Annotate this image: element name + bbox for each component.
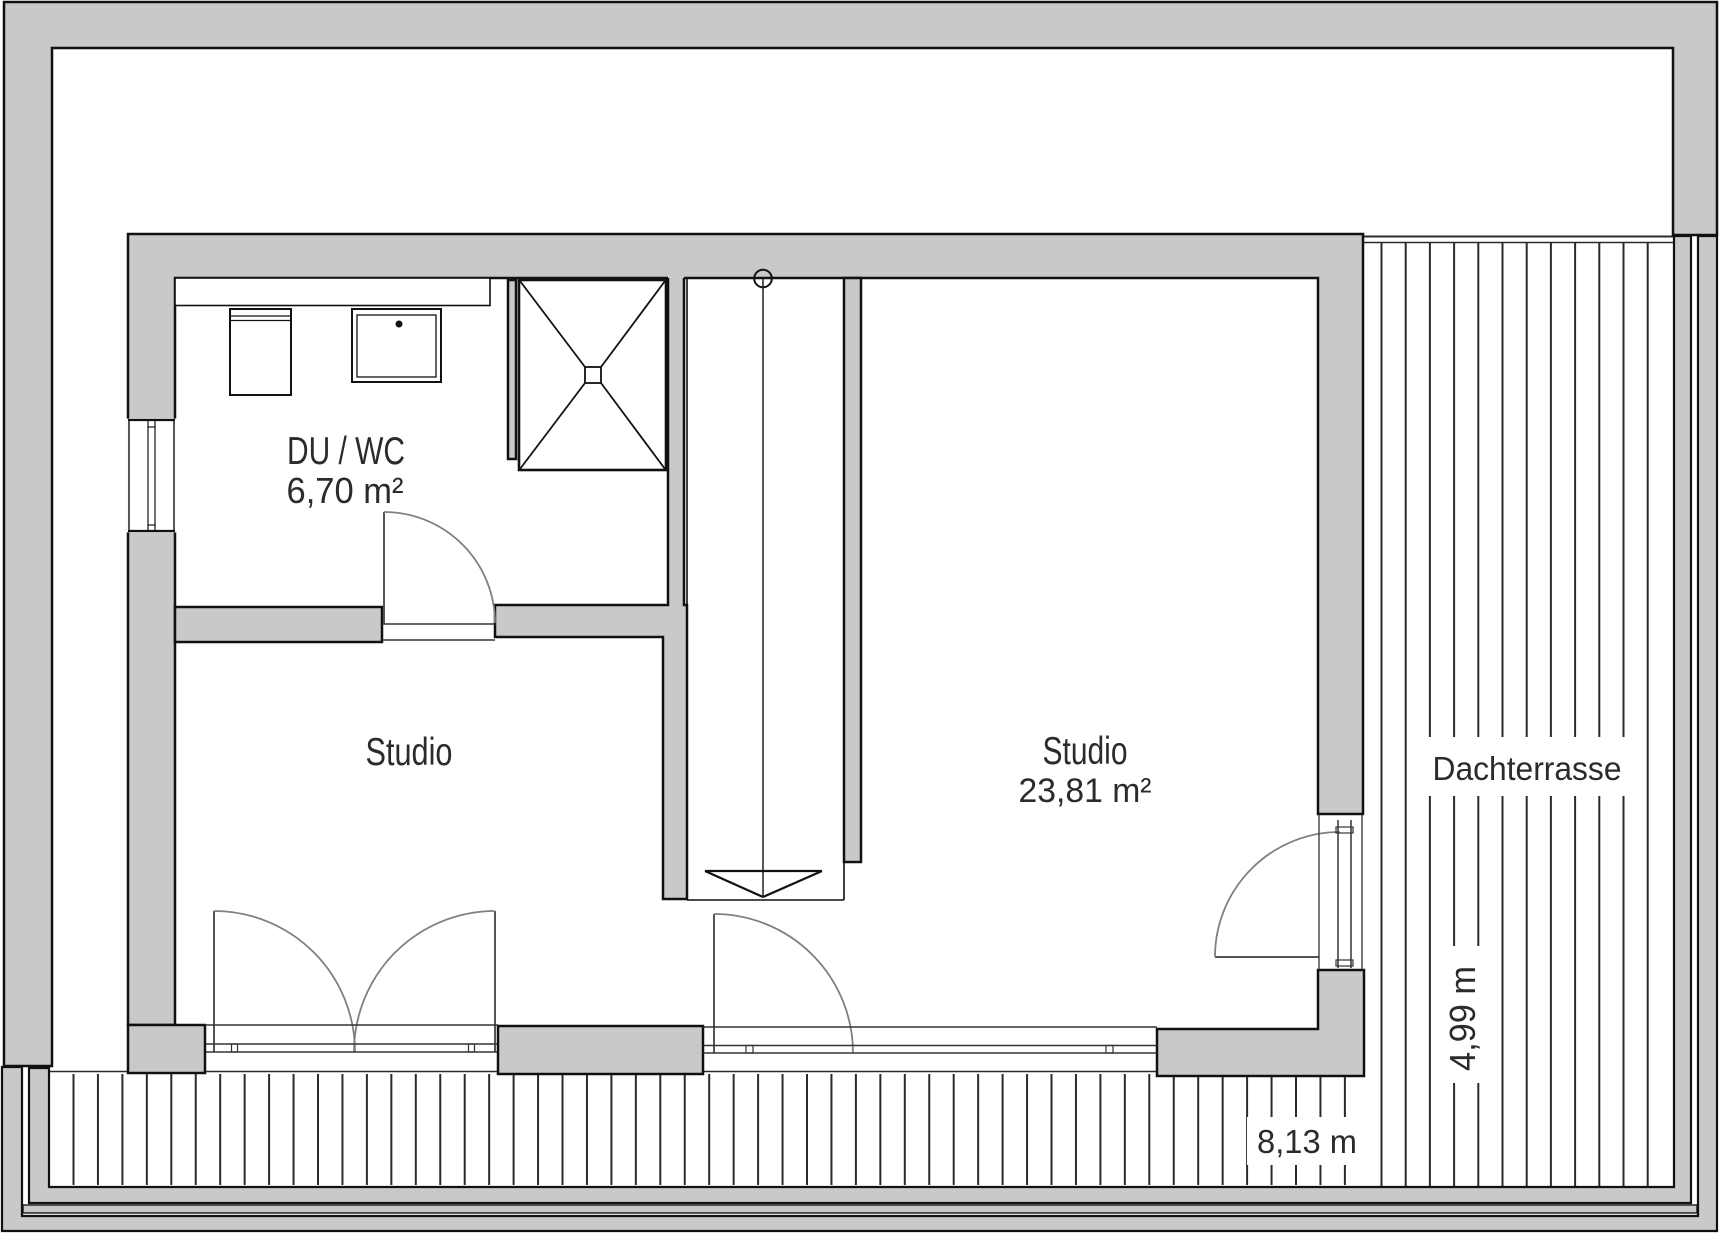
svg-text:Dachterrasse: Dachterrasse	[1433, 751, 1622, 788]
svg-text:23,81 m²: 23,81 m²	[1019, 772, 1152, 810]
svg-text:8,13 m: 8,13 m	[1257, 1124, 1357, 1161]
svg-text:Studio: Studio	[1043, 730, 1128, 773]
svg-text:DU / WC: DU / WC	[287, 430, 405, 473]
svg-text:4,99 m: 4,99 m	[1442, 966, 1483, 1071]
svg-text:6,70 m²: 6,70 m²	[287, 470, 404, 511]
svg-text:Studio: Studio	[366, 731, 453, 774]
